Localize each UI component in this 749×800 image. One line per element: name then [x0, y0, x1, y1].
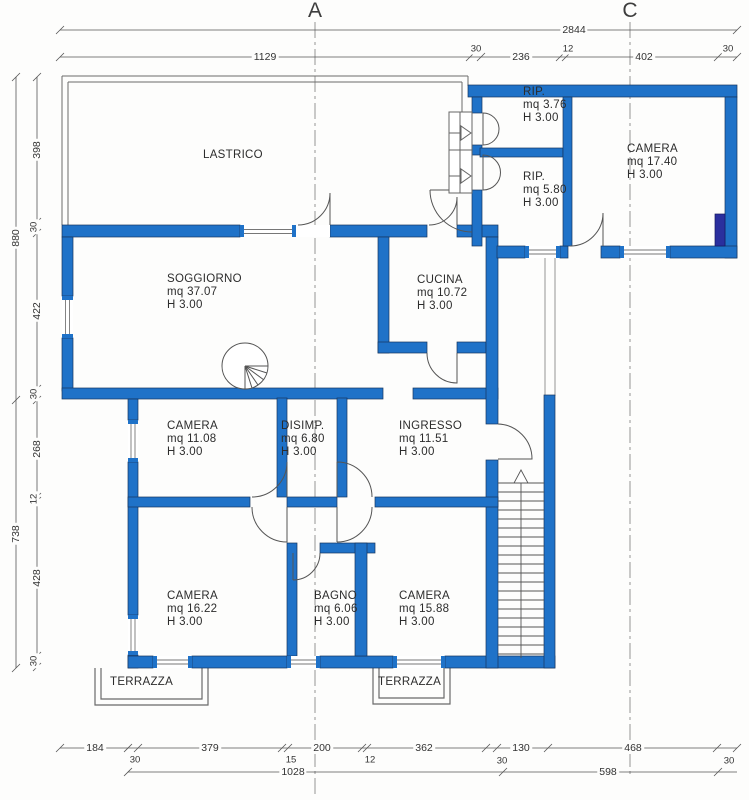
dim-top-30b: 30 [722, 44, 735, 55]
door-camera3 [252, 507, 287, 542]
dim-bot-200: 200 [311, 742, 333, 754]
dim-bot-130: 130 [510, 742, 532, 754]
dim-left-30b: 30 [29, 387, 40, 402]
room-label-soggiorno: SOGGIORNO mq 37.07 H 3.00 [167, 273, 242, 312]
dim-bot-362: 362 [413, 742, 435, 754]
door-camera17 [570, 213, 603, 246]
room-label-rip1: RIP. mq 3.76 H 3.00 [523, 86, 567, 125]
room-label-terrazza2: TERRAZZA [378, 676, 441, 689]
door-cucina-ingresso [427, 353, 457, 383]
dim-bot-30c: 30 [723, 756, 736, 767]
room-label-ingresso: INGRESSO mq 11.51 H 3.00 [399, 420, 462, 459]
floor-plan-canvas: A C LASTRICO RIP. mq 3.76 H 3.00 CAMERA … [0, 0, 749, 800]
dim-top-30a: 30 [470, 44, 483, 55]
dim-bot-12: 12 [364, 755, 377, 766]
room-label-camera3: CAMERA mq 16.22 H 3.00 [167, 590, 218, 629]
dim-bot-379: 379 [199, 742, 221, 754]
dim-left-30a: 30 [29, 220, 40, 235]
dim-top-total: 2844 [560, 24, 587, 36]
dim-bot-468: 468 [622, 742, 644, 754]
dim-left-30c: 30 [29, 654, 40, 669]
dim-top-12: 12 [562, 44, 575, 55]
door-rip2 [483, 155, 501, 190]
dim-left-268: 268 [31, 438, 43, 460]
dim-left-422: 422 [31, 300, 43, 322]
dim-bot-30b: 30 [496, 756, 509, 767]
dim-bot-30a: 30 [129, 755, 142, 766]
lastrico-outline [62, 76, 468, 225]
door-stair-landing [498, 424, 532, 459]
room-label-terrazza1: TERRAZZA [110, 676, 173, 689]
dim-left-398: 398 [31, 139, 43, 161]
dim-bot-598: 598 [597, 766, 619, 778]
dim-top-1129: 1129 [252, 51, 279, 63]
corridor-edges [545, 258, 555, 396]
room-label-camera1: CAMERA mq 17.40 H 3.00 [627, 143, 678, 182]
door-soggiorno-lastrico [298, 193, 330, 225]
dim-top-402: 402 [633, 51, 655, 63]
dim-bot-1028: 1028 [279, 766, 306, 778]
door-rip1 [483, 113, 499, 145]
dim-left-880: 880 [10, 227, 22, 249]
section-letter-c: C [622, 0, 637, 23]
dim-left-12: 12 [29, 492, 40, 507]
room-label-lastrico: LASTRICO [203, 149, 263, 162]
room-label-bagno: BAGNO mq 6.06 H 3.00 [314, 590, 358, 629]
room-label-disimp: DISIMP. mq 6.80 H 3.00 [281, 420, 325, 459]
dim-left-428: 428 [31, 567, 43, 589]
vent-shaft [449, 112, 472, 193]
dim-top-236: 236 [510, 51, 532, 63]
room-label-rip2: RIP. mq 5.80 H 3.00 [523, 171, 567, 210]
room-label-cucina: CUCINA mq 10.72 H 3.00 [417, 274, 467, 313]
window-pier [715, 214, 725, 246]
dim-left-738: 738 [10, 523, 22, 545]
staircase [498, 470, 544, 658]
room-label-camera4: CAMERA mq 15.88 H 3.00 [399, 590, 450, 629]
stair-up-arrow-icon [514, 470, 528, 483]
section-letter-a: A [308, 0, 322, 23]
door-camera4-down [337, 507, 372, 542]
dim-bot-184: 184 [84, 742, 106, 754]
room-label-camera2: CAMERA mq 11.08 H 3.00 [167, 420, 218, 459]
spiral-staircase [222, 343, 268, 389]
dim-bot-15: 15 [285, 755, 298, 766]
